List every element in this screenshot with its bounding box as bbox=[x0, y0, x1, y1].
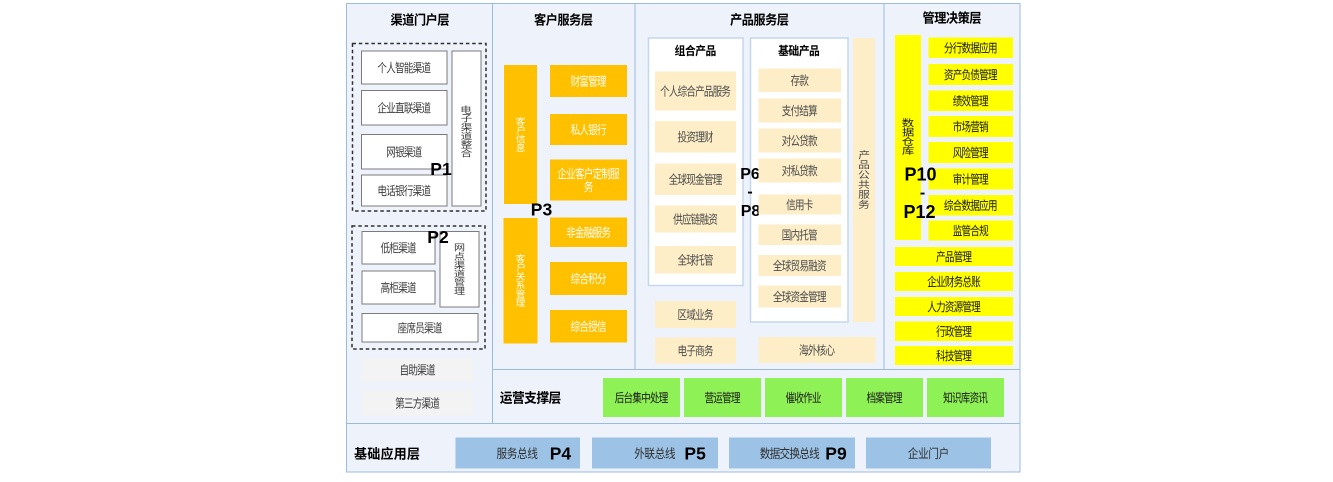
svg-text:P2: P2 bbox=[427, 227, 449, 247]
svg-text:-: - bbox=[747, 184, 752, 201]
svg-text:P9: P9 bbox=[825, 444, 847, 464]
svg-text:P1: P1 bbox=[430, 159, 452, 179]
svg-text:P4: P4 bbox=[550, 444, 572, 464]
svg-text:P12: P12 bbox=[903, 202, 935, 222]
svg-text:P6: P6 bbox=[740, 166, 760, 183]
svg-text:P5: P5 bbox=[684, 444, 706, 464]
svg-text:P3: P3 bbox=[531, 200, 553, 220]
svg-text:-: - bbox=[920, 185, 925, 202]
svg-text:P8: P8 bbox=[741, 203, 761, 220]
svg-text:P10: P10 bbox=[904, 165, 936, 185]
